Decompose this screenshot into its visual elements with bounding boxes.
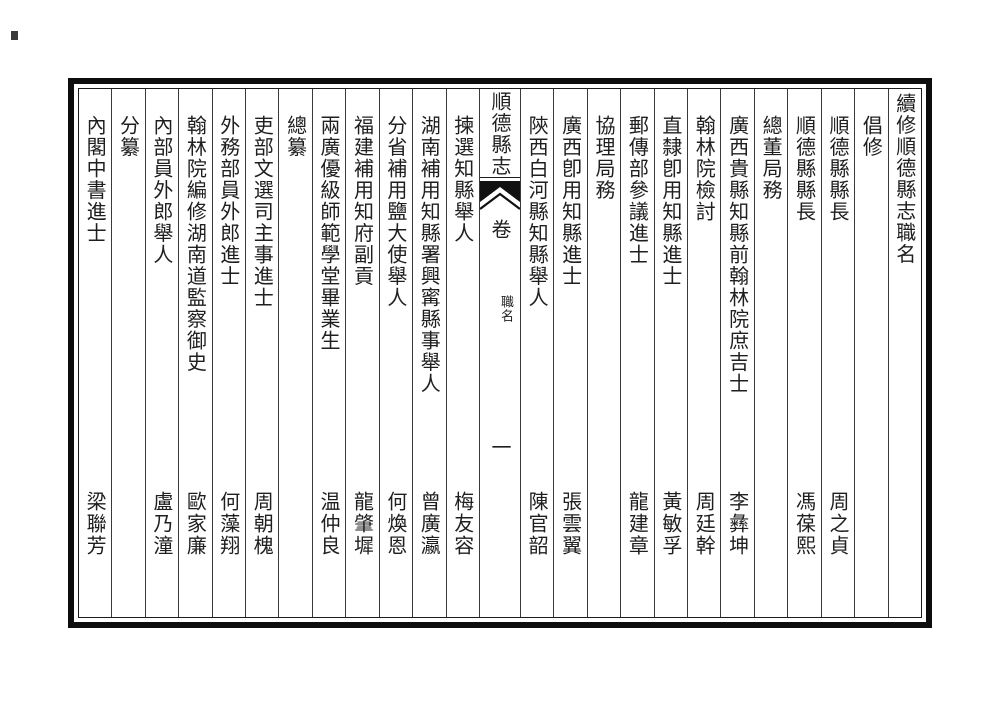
person-name: 馮葆熙 xyxy=(795,491,815,557)
entry-column: 翰林院編修湖南道監察御史歐家廉 xyxy=(178,89,211,617)
section-header-label: 總董局務 xyxy=(761,115,781,201)
scan-artifact xyxy=(11,31,18,40)
entry-column: 翰林院檢討周廷幹 xyxy=(687,89,720,617)
title-column: 續修順德縣志職名 xyxy=(888,89,921,617)
person-name: 曾廣瀛 xyxy=(419,491,439,557)
office-title: 內部員外郎舉人 xyxy=(152,115,172,266)
person-name: 龍建章 xyxy=(627,491,647,557)
section-header-column: 協理局務 xyxy=(587,89,620,617)
person-name: 歐家廉 xyxy=(185,491,205,557)
section-header-column: 分纂 xyxy=(111,89,144,617)
fishtail-mark-icon xyxy=(480,181,520,213)
person-name: 梁聯芳 xyxy=(85,491,105,557)
entry-column: 郵傳部參議進士龍建章 xyxy=(620,89,653,617)
person-name: 何藻翔 xyxy=(219,491,239,557)
office-title: 順德縣縣長 xyxy=(795,115,815,223)
entry-column: 分省補用鹽大使舉人何煥恩 xyxy=(379,89,412,617)
entry-column: 內部員外郎舉人盧乃潼 xyxy=(145,89,178,617)
person-name: 李彝坤 xyxy=(728,491,748,557)
person-name: 龍肇墀 xyxy=(352,491,372,557)
entry-column: 陝西白河縣知縣舉人陳官韶 xyxy=(520,89,553,617)
person-name: 周廷幹 xyxy=(694,491,714,557)
office-title: 外務部員外郎進士 xyxy=(219,115,239,287)
volume-label: 卷 xyxy=(490,219,510,241)
office-title: 吏部文選司主事進士 xyxy=(252,115,272,309)
office-title: 廣西卽用知縣進士 xyxy=(561,115,581,287)
entry-column: 廣西卽用知縣進士張雲翼 xyxy=(553,89,586,617)
office-title: 揀選知縣舉人 xyxy=(453,115,473,244)
page-columns: 續修順德縣志職名倡修順德縣縣長周之貞順德縣縣長馮葆熙總董局務廣西貴縣知縣前翰林院… xyxy=(78,88,922,618)
office-title: 福建補用知府副貢 xyxy=(352,115,372,287)
office-title: 兩廣優級師範學堂畢業生 xyxy=(319,115,339,352)
center-fold-rule xyxy=(480,177,520,178)
entry-column: 順德縣縣長馮葆熙 xyxy=(787,89,820,617)
office-title: 翰林院編修湖南道監察御史 xyxy=(185,115,205,373)
section-header-column: 總董局務 xyxy=(754,89,787,617)
section-header-label: 協理局務 xyxy=(594,115,614,201)
person-name: 温仲良 xyxy=(319,491,339,557)
office-title: 廣西貴縣知縣前翰林院庶吉士 xyxy=(728,115,748,395)
entry-column: 順德縣縣長周之貞 xyxy=(821,89,854,617)
office-title: 內閣中書進士 xyxy=(85,115,105,244)
section-header-label: 總纂 xyxy=(286,115,306,158)
office-title: 陝西白河縣知縣舉人 xyxy=(527,115,547,309)
section-label: 職名 xyxy=(499,295,512,323)
person-name: 梅友容 xyxy=(453,491,473,557)
person-name: 周之貞 xyxy=(828,491,848,557)
volume-number: 一 xyxy=(490,437,510,459)
person-name: 何煥恩 xyxy=(386,491,406,557)
section-header-label: 分纂 xyxy=(119,115,139,158)
entry-column: 內閣中書進士梁聯芳 xyxy=(79,89,111,617)
entry-column: 吏部文選司主事進士周朝槐 xyxy=(245,89,278,617)
person-name: 周朝槐 xyxy=(252,491,272,557)
office-title: 翰林院檢討 xyxy=(694,115,714,223)
person-name: 張雲翼 xyxy=(561,491,581,557)
center-fold-book-title: 順德縣志 xyxy=(490,91,510,177)
entry-column: 湖南補用知縣署興寗縣事舉人曾廣瀛 xyxy=(412,89,445,617)
page-title: 續修順德縣志職名 xyxy=(895,93,915,265)
entry-column: 揀選知縣舉人梅友容 xyxy=(446,89,479,617)
office-title: 郵傳部參議進士 xyxy=(627,115,647,266)
office-title: 湖南補用知縣署興寗縣事舉人 xyxy=(419,115,439,395)
person-name: 陳官韶 xyxy=(527,491,547,557)
entry-column: 直隸卽用知縣進士黃敏孚 xyxy=(654,89,687,617)
entry-column: 廣西貴縣知縣前翰林院庶吉士李彝坤 xyxy=(720,89,753,617)
section-header-column: 倡修 xyxy=(854,89,887,617)
entry-column: 外務部員外郎進士何藻翔 xyxy=(212,89,245,617)
book-page-frame: 續修順德縣志職名倡修順德縣縣長周之貞順德縣縣長馮葆熙總董局務廣西貴縣知縣前翰林院… xyxy=(68,78,932,628)
center-fold-column: 順德縣志卷職名一 xyxy=(479,89,520,617)
office-title: 順德縣縣長 xyxy=(828,115,848,223)
entry-column: 福建補用知府副貢龍肇墀 xyxy=(345,89,378,617)
office-title: 分省補用鹽大使舉人 xyxy=(386,115,406,309)
section-header-column: 總纂 xyxy=(278,89,311,617)
person-name: 盧乃潼 xyxy=(152,491,172,557)
entry-column: 兩廣優級師範學堂畢業生温仲良 xyxy=(312,89,345,617)
person-name: 黃敏孚 xyxy=(661,491,681,557)
section-header-label: 倡修 xyxy=(861,115,881,158)
office-title: 直隸卽用知縣進士 xyxy=(661,115,681,287)
